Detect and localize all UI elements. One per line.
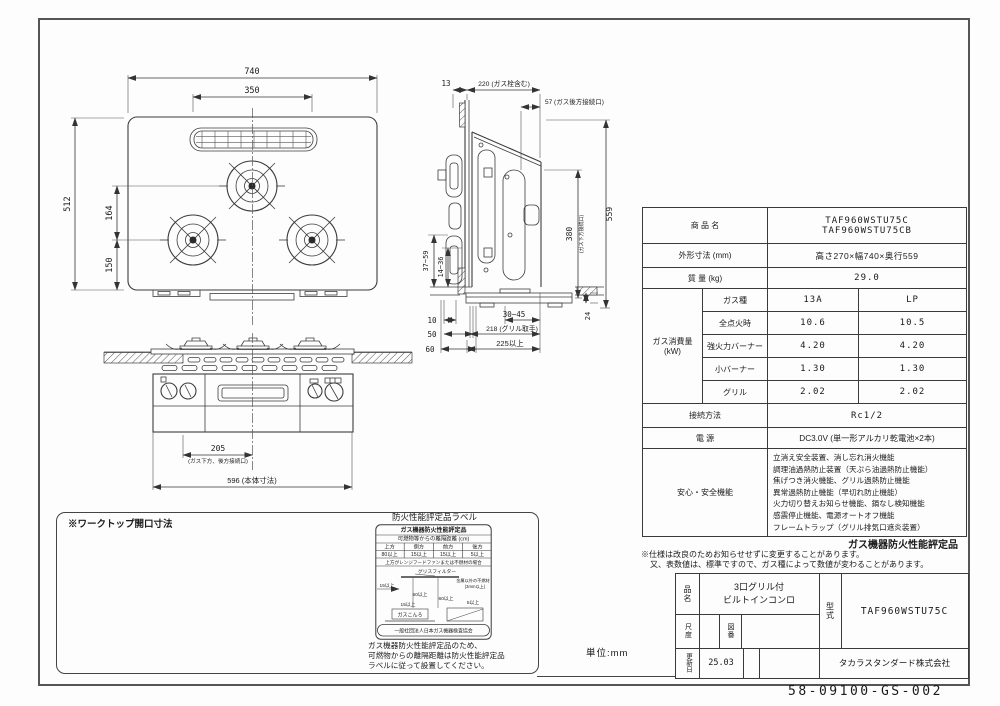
safety-label: 安心・安全機能 — [643, 449, 768, 537]
table-row: 電 源 DC3.0V (単一形アルカリ乾電池×2本) — [643, 428, 967, 449]
grill-label: グリル — [703, 381, 768, 404]
safety-line: 焦げつき消火機能、グリル過熱防止機能 — [773, 475, 966, 487]
dim-220: 220 (ガス栓含む) — [478, 79, 530, 88]
label-condition: 上方がレンジフードファンまたは不燃材の場合 — [385, 559, 482, 566]
dim-30-45: 30~45 — [503, 310, 526, 319]
worktop-section-title: ※ワークトップ開口寸法 — [68, 516, 173, 530]
dim-559: 559 — [605, 207, 614, 222]
col-rear: 後方 — [472, 542, 482, 550]
col-above: 上方 — [384, 542, 394, 550]
small-burner-lp: 1.30 — [859, 358, 967, 381]
col-front: 前方 — [443, 542, 453, 550]
unit-note: 単位:mm — [586, 645, 628, 659]
drawing-sheet: 740 350 512 164 150 — [0, 0, 1000, 706]
product-name-1: TAF960WSTU75C — [768, 216, 966, 226]
fire-note-2: 可燃物からの離隔距離は防火性能評定品 — [368, 651, 505, 661]
val-rear: 5以上 — [471, 550, 484, 558]
val-side: 15以上 — [411, 550, 427, 558]
dim-205: 205 — [211, 444, 226, 453]
model-label: 型式 — [819, 574, 841, 648]
dim-37-59: 37~59 — [422, 250, 430, 271]
front-view: 205 (ガス下方、後方接続口) 596 (本体寸法) — [104, 333, 412, 490]
gas-consumption-label: ガス消費量 (kW) — [643, 289, 703, 404]
grill-lp: 2.02 — [859, 381, 967, 404]
product-name-2: TAF960WSTU75CB — [768, 226, 966, 236]
dim-740: 740 — [244, 67, 259, 77]
fire-note-3: ラベルに従って設置してください。 — [368, 661, 505, 671]
weight-value: 29.0 — [768, 268, 967, 289]
power-label: 電 源 — [643, 428, 768, 449]
small-burner-label: 小バーナー — [703, 358, 768, 381]
model-value: TAF960WSTU75C — [841, 574, 968, 648]
stove-label: ガスこんろ — [397, 612, 422, 619]
table-row: 質 量 (kg) 29.0 — [643, 268, 967, 289]
dim-15-b: 15以上 — [401, 601, 416, 608]
high-burner-13a: 4.20 — [768, 335, 859, 358]
product-name-label: 商 品 名 — [643, 208, 768, 244]
fire-label-notes: ガス機器防火性能評定品のため、 可燃物からの離隔距離は防火性能評定品 ラベルに従… — [368, 641, 505, 670]
label-header: ガス機器防火性能評定品 — [400, 526, 466, 534]
grease-filter-label: グリスフィルター — [418, 568, 456, 575]
safety-line: フレームトラップ（グリル排気口遮炎装置） — [773, 522, 966, 534]
grill-13a: 2.02 — [768, 381, 859, 404]
dim-512: 512 — [63, 196, 73, 211]
metal-note: 金属以外の不燃材 — [456, 577, 490, 584]
small-burner-13a: 1.30 — [768, 358, 859, 381]
dim-225: 225以上 — [496, 339, 524, 348]
product-title-1: 3口グリル付 — [734, 581, 784, 594]
title-block: 品名 3口グリル付 ビルトインコンロ 型式 TAF960WSTU75C 尺度 図… — [675, 573, 969, 679]
val-above: 80以上 — [382, 550, 398, 558]
safety-line: 立消え安全装置、消し忘れ消火機能 — [773, 452, 966, 464]
fire-note-1: ガス機器防火性能評定品のため、 — [368, 641, 505, 651]
remark-2: 又、表数値は、標準ですので、ガス種によって数値が変わることがあります。 — [641, 560, 928, 570]
metal-note-2: (3mm以上) — [465, 583, 486, 589]
dim-57: 57 (ガス後方接続口) — [545, 97, 604, 106]
gas-group-line2: (kW) — [643, 347, 702, 356]
company-name: タカラスタンダード株式会社 — [821, 648, 968, 678]
safety-line: 異常過熱防止機能（早切れ防止機能） — [773, 487, 966, 499]
table-row: 商 品 名 TAF960WSTU75C TAF960WSTU75CB — [643, 208, 967, 244]
side-body — [472, 132, 541, 287]
high-burner-label: 強火力バーナー — [703, 335, 768, 358]
vent-slots — [162, 358, 344, 371]
title-block-extension-line — [537, 676, 675, 677]
gas-type-13a: 13A — [768, 289, 859, 312]
scale-label: 尺度 — [676, 614, 699, 648]
cert-product-note: ガス機器防火性能評定品 — [780, 536, 958, 551]
gas-group-line1: ガス消費量 — [643, 336, 702, 347]
safety-line: 火力切り替えお知らせ機能、鍋なし検知機能 — [773, 498, 966, 510]
table-row: ガス消費量 (kW) ガス種 13A LP — [643, 289, 967, 312]
fire-performance-label: ガス機器防火性能評定品 可燃物等からの離隔距離 (cm) 上方 側方 前方 後方… — [375, 524, 492, 640]
outer-dims-value: 高さ270×幅740×奥行559 — [768, 244, 967, 268]
dim-15-left: 15以上 — [380, 582, 395, 589]
spec-table: 商 品 名 TAF960WSTU75C TAF960WSTU75CB 外形寸法 … — [642, 207, 967, 537]
dim-24: 24 — [584, 312, 592, 320]
all-burner-label: 全点火時 — [703, 312, 768, 335]
dim-60-a: 60以上 — [413, 591, 428, 598]
name-label: 品名 — [676, 574, 699, 614]
front-panel — [153, 374, 353, 432]
val-front: 15以上 — [440, 550, 456, 558]
side-view-dimensions: 13 220 (ガス栓含む) 57 (ガス後方接続口) 559 380 (ガス下… — [422, 79, 614, 354]
remark-1: ※仕様は改良のためお知らせせずに変更することがあります。 — [641, 550, 928, 560]
dim-380-note: (ガス下方接続口) — [578, 215, 585, 254]
dim-205-note: (ガス下方、後方接続口) — [188, 457, 248, 465]
safety-line: 調理油過熱防止装置（天ぷら油過熱防止機能） — [773, 464, 966, 476]
update-date-value: 25.03 — [699, 648, 743, 678]
safety-features: 立消え安全装置、消し忘れ消火機能 調理油過熱防止装置（天ぷら油過熱防止機能） 焦… — [768, 449, 967, 537]
side-view: 13 220 (ガス栓含む) 57 (ガス後方接続口) 559 380 (ガス下… — [422, 79, 614, 354]
dim-150: 150 — [105, 257, 115, 272]
product-title-2: ビルトインコンロ — [723, 594, 795, 607]
connection-value: Rc1/2 — [768, 404, 967, 428]
remarks: ※仕様は改良のためお知らせせずに変更することがあります。 又、表数値は、標準です… — [641, 550, 928, 569]
certifying-org: 一般社団法人日本ガス機器検査協会 — [394, 627, 472, 634]
dim-13: 13 — [441, 79, 450, 88]
label-subheader: 可燃物等からの離隔距離 (cm) — [398, 534, 470, 542]
fire-label-title: 防火性能評定品ラベル — [392, 511, 477, 523]
power-value: DC3.0V (単一形アルカリ乾電池×2本) — [768, 428, 967, 449]
update-date-label: 更新日 — [676, 648, 699, 678]
connection-label: 接続方法 — [643, 404, 768, 428]
dim-14-36: 14~36 — [437, 256, 445, 277]
dim-10: 10 — [427, 316, 437, 325]
outer-dims-label: 外形寸法 (mm) — [643, 244, 768, 268]
table-row: 安心・安全機能 立消え安全装置、消し忘れ消火機能 調理油過熱防止装置（天ぷら油過… — [643, 449, 967, 537]
dim-60: 60 — [425, 345, 435, 354]
gas-type-lp: LP — [859, 289, 967, 312]
safety-line: 感震停止機能、電源オートオフ機能 — [773, 510, 966, 522]
figure-number-label: 図番 — [719, 614, 741, 648]
table-row: 接続方法 Rc1/2 — [643, 404, 967, 428]
col-side: 側方 — [414, 542, 424, 550]
drawing-number: 58-09100-GS-002 — [788, 684, 943, 699]
top-view-front-tabs — [153, 290, 347, 300]
dim-380: 380 — [565, 227, 574, 242]
table-row: 外形寸法 (mm) 高さ270×幅740×奥行559 — [643, 244, 967, 268]
dim-350: 350 — [244, 86, 259, 96]
high-burner-lp: 4.20 — [859, 335, 967, 358]
dim-50: 50 — [427, 330, 437, 339]
product-title: 3口グリル付 ビルトインコンロ — [699, 574, 819, 614]
dim-60-b: 60以上 — [439, 595, 454, 602]
weight-label: 質 量 (kg) — [643, 268, 768, 289]
front-burners — [166, 338, 340, 350]
dim-218: 218 (グリル取手) — [486, 324, 538, 333]
dim-5: 5以上 — [467, 599, 479, 606]
gas-type-label: ガス種 — [703, 289, 768, 312]
top-view: 740 350 512 164 150 — [63, 67, 377, 325]
all-burner-lp: 10.5 — [859, 312, 967, 335]
all-burner-13a: 10.6 — [768, 312, 859, 335]
dim-164: 164 — [105, 205, 115, 220]
dim-596: 596 (本体寸法) — [227, 475, 277, 485]
